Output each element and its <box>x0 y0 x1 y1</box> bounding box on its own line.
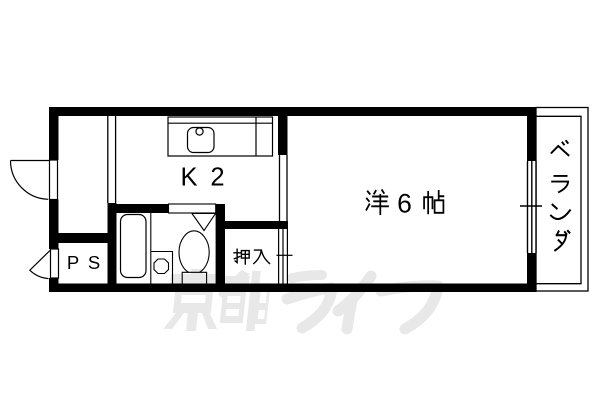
svg-text:S: S <box>88 252 100 273</box>
svg-text:P: P <box>67 252 79 273</box>
svg-text:2: 2 <box>210 164 224 192</box>
svg-text:K: K <box>180 164 197 192</box>
svg-text:6: 6 <box>397 189 412 219</box>
